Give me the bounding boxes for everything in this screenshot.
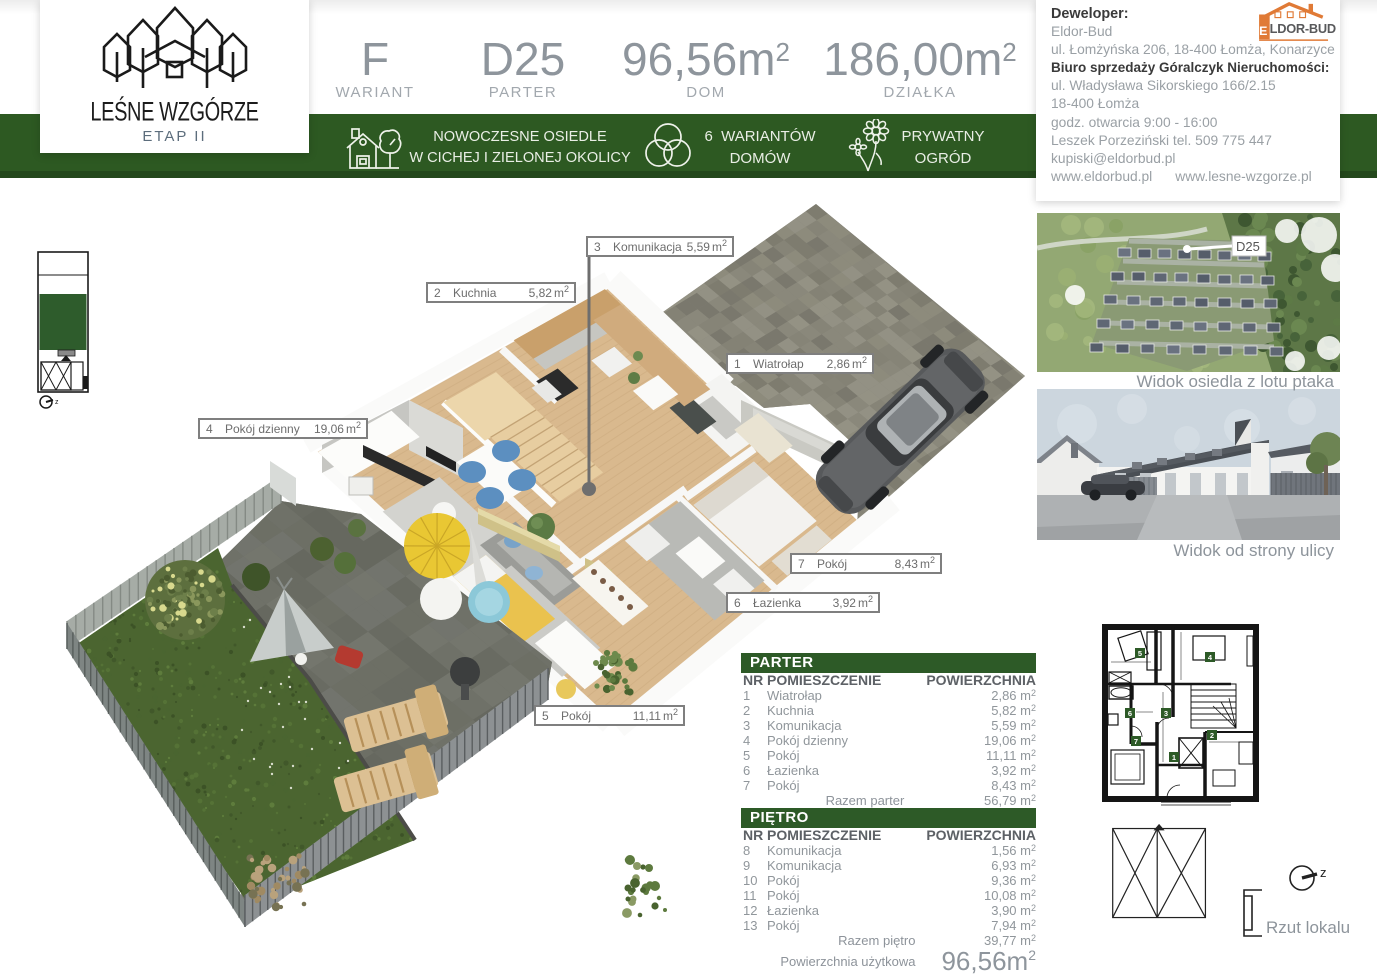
svg-text:3: 3 [1164,709,1168,718]
svg-text:1: 1 [1172,753,1176,762]
svg-text:D25: D25 [1236,239,1260,254]
svg-text:z: z [55,399,59,406]
svg-text:6: 6 [1128,709,1132,718]
svg-text:7: 7 [1134,737,1138,746]
svg-text:z: z [1320,865,1327,880]
svg-text:5: 5 [1138,649,1142,658]
svg-text:2: 2 [1210,731,1214,740]
